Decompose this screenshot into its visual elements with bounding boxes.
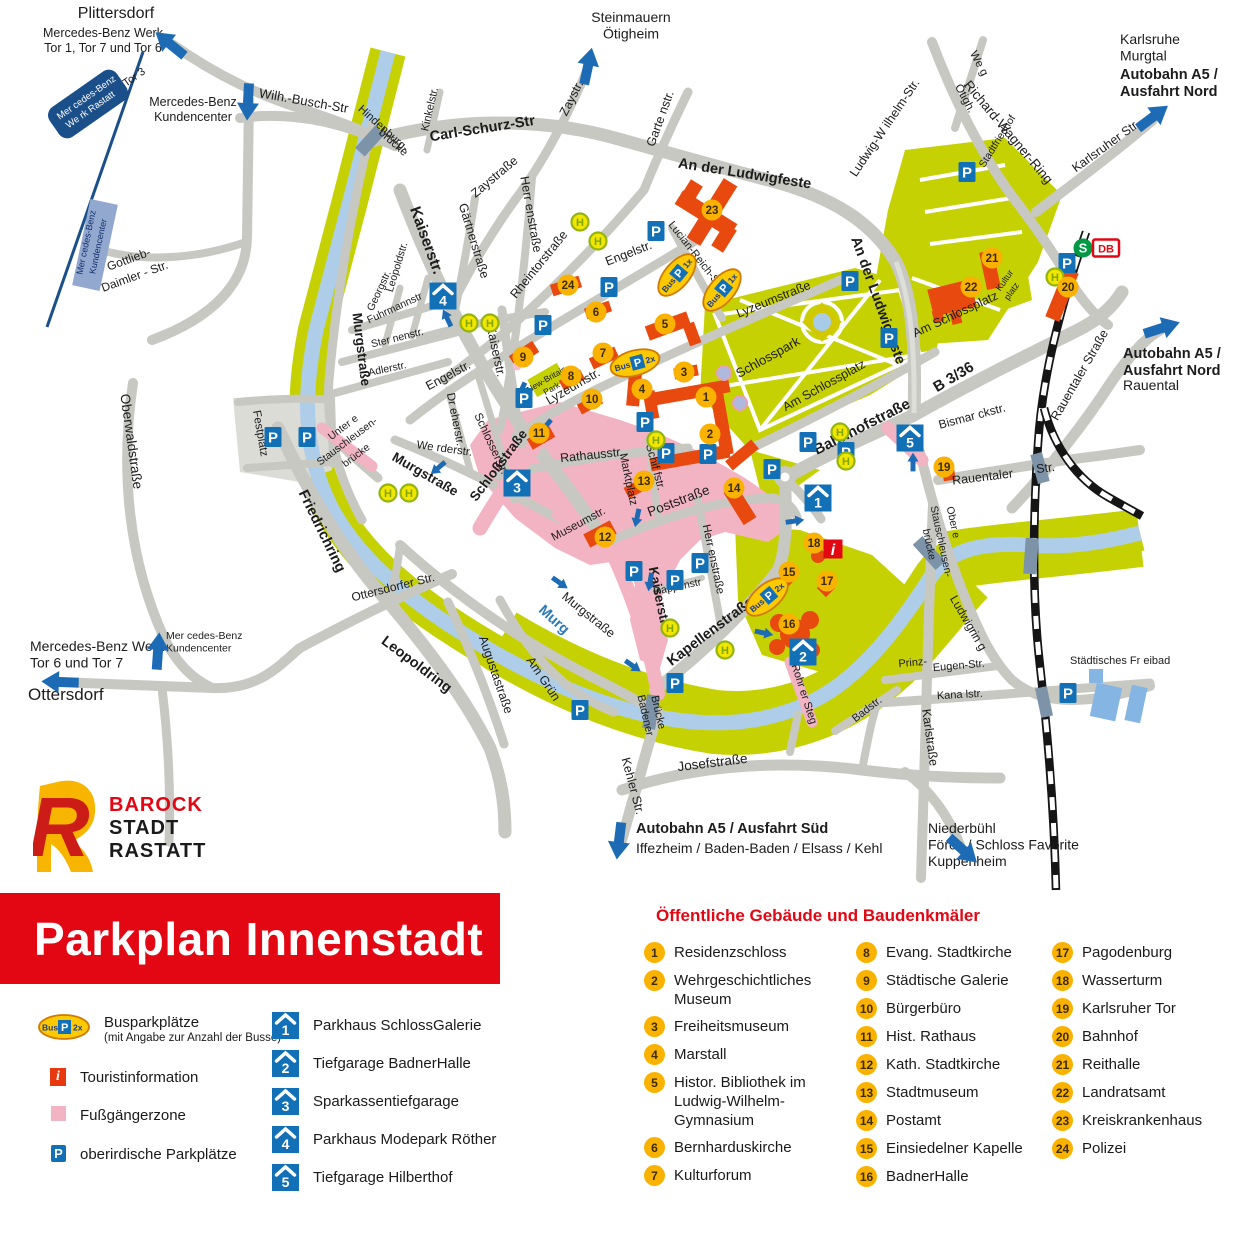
- poi-legend-number: 21: [1052, 1054, 1073, 1075]
- poi-column-2: 8Evang. Stadtkirche9Städtische Galerie10…: [856, 942, 1046, 1194]
- garage-marker-number: 1: [814, 495, 822, 511]
- destination-label: KarlsruheMurgtal: [1120, 31, 1180, 64]
- bus-stop-icon: H: [590, 233, 607, 250]
- garage-icon: 2: [272, 1050, 299, 1077]
- poi-legend-label: Marstall: [674, 1044, 727, 1065]
- poi-marker-number: 17: [821, 576, 834, 588]
- garage-legend-item: 2Tiefgarage BadnerHalle: [272, 1050, 496, 1077]
- poi-marker-number: 2: [707, 429, 713, 441]
- garage-icon-number: 4: [282, 1136, 290, 1152]
- poi-legend-number: 3: [644, 1016, 665, 1037]
- poi-legend-number: 11: [856, 1026, 877, 1047]
- poi-marker-number: 15: [783, 567, 796, 579]
- poi-legend-item: 13Stadtmuseum: [856, 1082, 1046, 1103]
- parking-icon-letter: P: [604, 280, 614, 297]
- destination-label-line: Autobahn A5 / Ausfahrt Süd: [636, 821, 828, 837]
- garage-marker: 2: [790, 639, 817, 666]
- destination-label-line: Niederbühl: [928, 820, 996, 836]
- sbahn-letter: S: [1079, 241, 1088, 256]
- legend-bus-label: Busparkplätze: [104, 1014, 281, 1032]
- poi-legend-number: 13: [856, 1082, 877, 1103]
- bus-stop-icon: H: [572, 214, 589, 231]
- destination-label: Autobahn A5 / Ausfahrt Süd: [636, 821, 828, 837]
- destination-label-line: Autobahn A5 /: [1120, 67, 1218, 83]
- garage-icon-number: 1: [282, 1022, 290, 1038]
- parking-icon: P: [800, 432, 817, 452]
- parking-icon: P: [667, 570, 684, 590]
- poi-marker: 19: [934, 457, 955, 478]
- poi-legend-label: Landratsamt: [1082, 1082, 1165, 1103]
- schlosspark-pond: [813, 313, 831, 331]
- bus-stop-icon: H: [401, 485, 418, 502]
- destination-label: Iffezheim / Baden-Baden / Elsass / Kehl: [636, 840, 882, 856]
- street-karlsruher-str: [1036, 120, 1153, 212]
- parking-icon-letter: P: [651, 224, 661, 241]
- legend-pedestrian-label: Fußgängerzone: [80, 1106, 186, 1125]
- bus-stop-letter: H: [1051, 272, 1059, 284]
- parking-icon: P: [265, 427, 282, 447]
- parking-icon: P: [637, 412, 654, 432]
- logo-line-rastatt: RASTATT: [109, 840, 206, 863]
- street-label: Zaystr.: [557, 78, 587, 118]
- poi-marker-number: 18: [808, 538, 821, 550]
- logo-r-glyph: R: [33, 780, 90, 874]
- poi-marker: 9: [513, 347, 534, 368]
- destination-label-line: Steinmauern: [591, 9, 670, 25]
- legend-parkplaetze: P oberirdische Parkplätze: [51, 1145, 237, 1164]
- poi-marker-number: 19: [938, 462, 951, 474]
- sbahn-icon: S: [1074, 239, 1093, 258]
- parking-icon: P: [535, 315, 552, 335]
- destination-label-line: Ausfahrt Nord: [1120, 84, 1217, 100]
- poi-marker: 12: [595, 527, 616, 548]
- poi-legend-item: 7Kulturforum: [644, 1165, 834, 1186]
- parking-icon-letter: P: [670, 573, 680, 590]
- garage-icon-number: 3: [282, 1098, 290, 1114]
- poi-legend-item: 14Postamt: [856, 1110, 1046, 1131]
- poi-legend-item: 12Kath. Stadtkirche: [856, 1054, 1046, 1075]
- garage-marker-number: 2: [799, 649, 807, 665]
- garage-legend-item: 1Parkhaus SchlossGalerie: [272, 1012, 496, 1039]
- poi-legend-item: 24Polizei: [1052, 1138, 1240, 1159]
- garage-legend-label: Parkhaus Modepark Röther: [313, 1131, 496, 1148]
- bus-stop-icon: H: [838, 453, 855, 470]
- building-bibliothek: [683, 322, 702, 347]
- poi-legend-item: 3Freiheitsmuseum: [644, 1016, 834, 1037]
- poi-legend-label: Histor. Bibliothek im Ludwig-Wilhelm-Gym…: [674, 1072, 834, 1130]
- garage-icon: 5: [272, 1164, 299, 1191]
- roundabout-center: [781, 473, 790, 482]
- building-badnerhalle: [801, 611, 819, 629]
- parking-icon-letter: P: [695, 556, 705, 573]
- title-banner: Parkplan Innenstadt: [0, 893, 500, 984]
- parking-icon: P: [1060, 683, 1077, 703]
- poi-marker: 13: [634, 471, 655, 492]
- bus-stop-letter: H: [652, 435, 660, 447]
- street-kundencenter: [152, 100, 249, 340]
- garage-marker: 1: [805, 485, 832, 512]
- barock-stadt-rastatt-logo: R BAROCK STADT RASTATT: [33, 778, 273, 878]
- garage-marker-number: 4: [439, 293, 447, 309]
- poi-legend-number: 6: [644, 1137, 665, 1158]
- pedestrian-zone-swatch: [51, 1106, 66, 1121]
- poi-legend-item: 11Hist. Rathaus: [856, 1026, 1046, 1047]
- poi-legend-number: 4: [644, 1044, 665, 1065]
- legend-fussgaengerzone: Fußgängerzone: [51, 1106, 186, 1125]
- parking-icon-letter: P: [538, 318, 548, 335]
- street-label: Dr eherstr.: [444, 392, 466, 447]
- poi-legend-item: 16BadnerHalle: [856, 1166, 1046, 1187]
- logo-line-barock: BAROCK: [109, 794, 206, 817]
- park-fountain: [717, 366, 731, 380]
- poi-legend-item: 6Bernharduskirche: [644, 1137, 834, 1158]
- garage-icon: 1: [272, 1012, 299, 1039]
- poi-legend-label: Pagodenburg: [1082, 942, 1172, 963]
- garage-legend-label: Sparkassentiefgarage: [313, 1093, 459, 1110]
- garage-legend-label: Tiefgarage BadnerHalle: [313, 1055, 471, 1072]
- parking-icon-letter: P: [1063, 686, 1073, 703]
- poi-marker-number: 1: [703, 392, 710, 404]
- freibad-building: [1089, 669, 1103, 683]
- poi-legend-label: Wasserturm: [1082, 970, 1162, 991]
- poi-marker-number: 13: [638, 476, 651, 488]
- garage-icon-number: 5: [282, 1174, 290, 1190]
- poi-legend-item: 2Wehrgeschichtliches Museum: [644, 970, 834, 1009]
- garage-legend-label: Tiefgarage Hilberthof: [313, 1169, 453, 1186]
- poi-marker-number: 22: [965, 282, 978, 294]
- legend-bus-sublabel: (mit Angabe zur Anzahl der Busse): [104, 1032, 281, 1044]
- legend-touristinfo: i Touristinformation: [50, 1068, 198, 1087]
- destination-label: Autobahn A5 /Ausfahrt Nord: [1120, 67, 1218, 100]
- poi-marker: 24: [558, 275, 579, 296]
- svg-text:Bus: Bus: [42, 1023, 58, 1033]
- poi-legend-number: 24: [1052, 1138, 1073, 1159]
- poi-legend-label: Freiheitsmuseum: [674, 1016, 789, 1037]
- legend-parking-label: oberirdische Parkplätze: [80, 1145, 237, 1164]
- poi-legend-label: Reithalle: [1082, 1054, 1140, 1075]
- parking-icon: P: [959, 162, 976, 182]
- parking-icon-letter: P: [661, 446, 671, 463]
- poi-legend-item: 20Bahnhof: [1052, 1026, 1240, 1047]
- parking-icon: P: [51, 1145, 66, 1162]
- parking-icon: P: [626, 561, 643, 581]
- poi-legend-label: Kreiskrankenhaus: [1082, 1110, 1202, 1131]
- destination-label-line: Plittersdorf: [78, 5, 155, 22]
- bus-stop-icon: H: [717, 642, 734, 659]
- destination-label-line: Ottersdorf: [28, 685, 104, 704]
- poi-legend-number: 20: [1052, 1026, 1073, 1047]
- destination-label-line: Städtisches Fr eibad: [1070, 655, 1170, 667]
- poi-legend-item: 9Städtische Galerie: [856, 970, 1046, 991]
- bus-stop-letter: H: [465, 318, 473, 330]
- tourist-info-icon: i: [824, 540, 843, 560]
- poi-legend-item: 1Residenzschloss: [644, 942, 834, 963]
- parking-icon-letter: P: [268, 430, 278, 447]
- parking-icon-letter: P: [629, 564, 639, 581]
- street-label: Murgstraße: [559, 589, 618, 640]
- garage-legend-item: 5Tiefgarage Hilberthof: [272, 1164, 496, 1191]
- poi-column-3: 17Pagodenburg18Wasserturm19Karlsruher To…: [1052, 942, 1240, 1166]
- poi-marker-number: 6: [593, 307, 599, 319]
- destination-label-line: Tor 6 und Tor 7: [30, 655, 123, 671]
- poi-column-1: 1Residenzschloss2Wehrgeschichtliches Mus…: [644, 942, 834, 1193]
- poi-marker-number: 3: [681, 367, 687, 379]
- poi-marker-number: 5: [662, 319, 669, 331]
- poi-marker-number: 14: [728, 483, 741, 495]
- parking-icon: P: [881, 328, 898, 348]
- poi-legend-item: 22Landratsamt: [1052, 1082, 1240, 1103]
- poi-marker: 11: [529, 423, 550, 444]
- bus-parking-icon: Bus P 2x: [38, 1014, 90, 1040]
- parkplan-poster: Wilh.-Busch-StrHindenburg-brückeCarl-Sch…: [0, 0, 1240, 1240]
- destination-label-line: Rauental: [1123, 377, 1179, 393]
- poi-legend-label: Kath. Stadtkirche: [886, 1054, 1000, 1075]
- poi-marker-number: 7: [600, 348, 606, 360]
- destination-label: Mer cedes-BenzKundencenter: [166, 630, 242, 654]
- poi-marker-number: 24: [562, 280, 575, 292]
- logo-emblem-icon: R: [33, 778, 99, 874]
- poi-legend-number: 7: [644, 1165, 665, 1186]
- poi-legend-label: BadnerHalle: [886, 1166, 969, 1187]
- street-label: Zaystraße: [468, 153, 520, 200]
- garage-legend-item: 3Sparkassentiefgarage: [272, 1088, 496, 1115]
- destination-label-line: Kundencenter: [154, 110, 232, 124]
- destination-label: Autobahn A5 /Ausfahrt Nord: [1123, 346, 1221, 379]
- poi-legend-number: 10: [856, 998, 877, 1019]
- street-label: Prinz-: [898, 656, 928, 670]
- page-title: Parkplan Innenstadt: [0, 912, 483, 966]
- poi-marker: 21: [982, 248, 1003, 269]
- parking-icon: P: [764, 459, 781, 479]
- poi-marker-number: 4: [639, 384, 646, 396]
- bus-stop-icon: H: [648, 432, 665, 449]
- poi-marker: 3: [674, 362, 695, 383]
- destination-label-line: Murgtal: [1120, 48, 1167, 64]
- logo-line-stadt: STADT: [109, 817, 206, 840]
- poi-marker-number: 23: [706, 205, 719, 217]
- poi-marker-number: 8: [568, 371, 575, 383]
- parking-icon-letter: P: [884, 331, 894, 348]
- poi-legend-number: 14: [856, 1110, 877, 1131]
- poi-legend-item: 21Reithalle: [1052, 1054, 1240, 1075]
- poi-legend-item: 17Pagodenburg: [1052, 942, 1240, 963]
- destination-label: SteinmauernÖtigheim: [591, 9, 670, 42]
- poi-legend-number: 1: [644, 942, 665, 963]
- poi-legend-label: Wehrgeschichtliches Museum: [674, 970, 834, 1009]
- bus-stop-letter: H: [405, 488, 413, 500]
- bus-stop-icon: H: [461, 315, 478, 332]
- poi-marker: 10: [582, 389, 603, 410]
- poi-marker: 7: [593, 343, 614, 364]
- poi-legend-item: 19Karlsruher Tor: [1052, 998, 1240, 1019]
- map-canvas: Wilh.-Busch-StrHindenburg-brückeCarl-Sch…: [0, 0, 1240, 893]
- poi-legend-label: Postamt: [886, 1110, 941, 1131]
- poi-legend-number: 18: [1052, 970, 1073, 991]
- poi-legend-number: 2: [644, 970, 665, 991]
- bus-stop-letter: H: [594, 236, 602, 248]
- poi-legend-label: Stadtmuseum: [886, 1082, 979, 1103]
- street-festplatz-nord: [238, 399, 331, 402]
- bus-stop-letter: H: [576, 217, 584, 229]
- garage-icon: 3: [272, 1088, 299, 1115]
- poi-marker: 23: [702, 200, 723, 221]
- destination-label-line: Mercedes-Benz Werk: [43, 26, 164, 40]
- poi-legend-number: 16: [856, 1166, 877, 1187]
- destination-label: Mercedes-BenzKundencenter: [149, 95, 237, 124]
- garage-marker: 5: [897, 425, 924, 452]
- parking-icon-letter: P: [703, 447, 713, 464]
- garage-marker-number: 5: [906, 435, 914, 451]
- destination-label-line: Tor 1, Tor 7 und Tor 6: [44, 41, 162, 55]
- parking-icon-letter: P: [670, 676, 680, 693]
- db-logo-letters: DB: [1098, 244, 1114, 256]
- garage-marker-number: 3: [513, 480, 521, 496]
- poi-marker: 5: [655, 314, 676, 335]
- parking-icon-letter: P: [575, 703, 585, 720]
- logo-text: BAROCK STADT RASTATT: [109, 778, 206, 878]
- poi-legend-label: Bernharduskirche: [674, 1137, 792, 1158]
- poi-marker: 15: [779, 562, 800, 583]
- destination-label: Städtisches Fr eibad: [1070, 655, 1170, 667]
- bus-stop-icon: H: [482, 315, 499, 332]
- street-label: Tor 3: [121, 66, 148, 90]
- poi-legend-number: 8: [856, 942, 877, 963]
- poi-legend-item: 18Wasserturm: [1052, 970, 1240, 991]
- parking-icon-letter: P: [302, 430, 312, 447]
- poi-marker: 17: [817, 571, 838, 592]
- poi-legend-number: 23: [1052, 1110, 1073, 1131]
- bus-stop-letter: H: [486, 318, 494, 330]
- bus-stop-icon: H: [380, 485, 397, 502]
- garage-legend-list: 1Parkhaus SchlossGalerie2Tiefgarage Badn…: [272, 1012, 496, 1202]
- legend-busparkplaetze: Bus P 2x Busparkplätze (mit Angabe zur A…: [38, 1014, 281, 1044]
- street-label: Herr enstraße: [517, 175, 544, 253]
- poi-legend-title: Öffentliche Gebäude und Baudenkmäler: [656, 906, 1234, 926]
- poi-legend-label: Polizei: [1082, 1138, 1126, 1159]
- poi-marker: 2: [700, 424, 721, 445]
- building-badnerhalle: [769, 639, 785, 655]
- garage-legend-item: 4Parkhaus Modepark Röther: [272, 1126, 496, 1153]
- poi-marker: 6: [586, 302, 607, 323]
- bus-stop-letter: H: [666, 623, 674, 635]
- poi-legend-number: 12: [856, 1054, 877, 1075]
- street-label: Kana lstr.: [937, 688, 983, 702]
- poi-legend-item: 15Einsiedelner Kapelle: [856, 1138, 1046, 1159]
- destination-label-line: Ötigheim: [603, 25, 659, 42]
- poi-legend-label: Bahnhof: [1082, 1026, 1138, 1047]
- garage-icon-number: 2: [282, 1060, 290, 1076]
- destination-label-line: Autobahn A5 /: [1123, 346, 1221, 362]
- poi-legend-item: 23Kreiskrankenhaus: [1052, 1110, 1240, 1131]
- street-label: Bismar ckstr.: [937, 400, 1007, 431]
- street-label: Oberwaldstraße: [117, 393, 145, 490]
- poi-marker-number: 20: [1062, 282, 1075, 294]
- poi-legend-number: 22: [1052, 1082, 1073, 1103]
- destination-label: Mercedes-Benz WerkTor 1, Tor 7 und Tor 6: [43, 26, 164, 55]
- poi-marker: 16: [779, 614, 800, 635]
- map-svg: Wilh.-Busch-StrHindenburg-brückeCarl-Sch…: [0, 0, 1240, 893]
- parking-icon: P: [648, 221, 665, 241]
- bus-stop-icon: H: [662, 620, 679, 637]
- bus-stop-letter: H: [721, 645, 729, 657]
- garage-marker: 3: [504, 470, 531, 497]
- destination-label-line: Mercedes-Benz: [149, 95, 237, 109]
- park-fountain: [733, 396, 747, 410]
- poi-legend-label: Residenzschloss: [674, 942, 787, 963]
- parking-icon: P: [700, 444, 717, 464]
- street-label: Rauentaler: [951, 466, 1013, 487]
- poi-legend-label: Einsiedelner Kapelle: [886, 1138, 1023, 1159]
- destination-label: Mercedes-Benz WerkTor 6 und Tor 7: [30, 638, 165, 671]
- bahnbruecke-murg: [1023, 538, 1038, 575]
- poi-legend: Öffentliche Gebäude und Baudenkmäler 1Re…: [634, 906, 1234, 926]
- poi-legend-label: Kulturforum: [674, 1165, 752, 1186]
- poi-legend-label: Bürgerbüro: [886, 998, 961, 1019]
- parking-icon: P: [601, 277, 618, 297]
- poi-legend-label: Hist. Rathaus: [886, 1026, 976, 1047]
- destination-label-line: Iffezheim / Baden-Baden / Elsass / Kehl: [636, 840, 882, 856]
- legend-info-label: Touristinformation: [80, 1068, 198, 1087]
- poi-marker-number: 11: [533, 428, 546, 440]
- poi-legend-number: 9: [856, 970, 877, 991]
- parking-icon-letter: P: [962, 165, 972, 182]
- bus-stop-letter: H: [384, 488, 392, 500]
- poi-marker: 18: [804, 533, 825, 554]
- freibad-layer: [1089, 669, 1148, 723]
- poi-marker: 22: [961, 277, 982, 298]
- destination-label: Ottersdorf: [28, 685, 104, 704]
- poi-marker: 14: [724, 478, 745, 499]
- poi-legend-label: Evang. Stadtkirche: [886, 942, 1012, 963]
- poi-marker-number: 16: [783, 619, 796, 631]
- poi-legend-item: 5Histor. Bibliothek im Ludwig-Wilhelm-Gy…: [644, 1072, 834, 1130]
- svg-text:2x: 2x: [73, 1023, 83, 1033]
- parking-icon: P: [692, 553, 709, 573]
- poi-marker: 20: [1058, 277, 1079, 298]
- poi-legend-number: 15: [856, 1138, 877, 1159]
- poi-marker-number: 9: [520, 352, 526, 364]
- poi-legend-item: 4Marstall: [644, 1044, 834, 1065]
- destination-label-line: Mer cedes-Benz: [166, 630, 242, 642]
- poi-legend-label: Städtische Galerie: [886, 970, 1009, 991]
- street-label: Str.: [1035, 460, 1055, 476]
- poi-marker: 1: [696, 387, 717, 408]
- parking-icon: P: [299, 427, 316, 447]
- garage-icon: 4: [272, 1126, 299, 1153]
- destination-label-line: Kundencenter: [166, 642, 232, 654]
- destination-label-line: Mercedes-Benz Werk: [30, 638, 165, 654]
- parking-icon: P: [516, 388, 533, 408]
- poi-legend-item: 8Evang. Stadtkirche: [856, 942, 1046, 963]
- poi-legend-number: 17: [1052, 942, 1073, 963]
- poi-marker: 8: [561, 366, 582, 387]
- svg-text:P: P: [61, 1022, 68, 1034]
- poi-legend-number: 5: [644, 1072, 665, 1093]
- street-label: Engelstr.: [603, 238, 653, 269]
- parking-icon: P: [572, 700, 589, 720]
- parking-icon: P: [667, 673, 684, 693]
- parking-icon-letter: P: [640, 415, 650, 432]
- tourist-info-icon: i: [50, 1068, 66, 1086]
- poi-marker-number: 12: [599, 532, 612, 544]
- destination-label-line: Karlsruhe: [1120, 31, 1180, 47]
- poi-marker-number: 21: [986, 253, 999, 265]
- bus-stop-letter: H: [842, 456, 850, 468]
- destination-label: Rauental: [1123, 377, 1179, 393]
- street-label: Karlsruher Str: [1069, 118, 1140, 175]
- tourist-info-letter: i: [831, 542, 836, 559]
- parking-icon-letter: P: [767, 462, 777, 479]
